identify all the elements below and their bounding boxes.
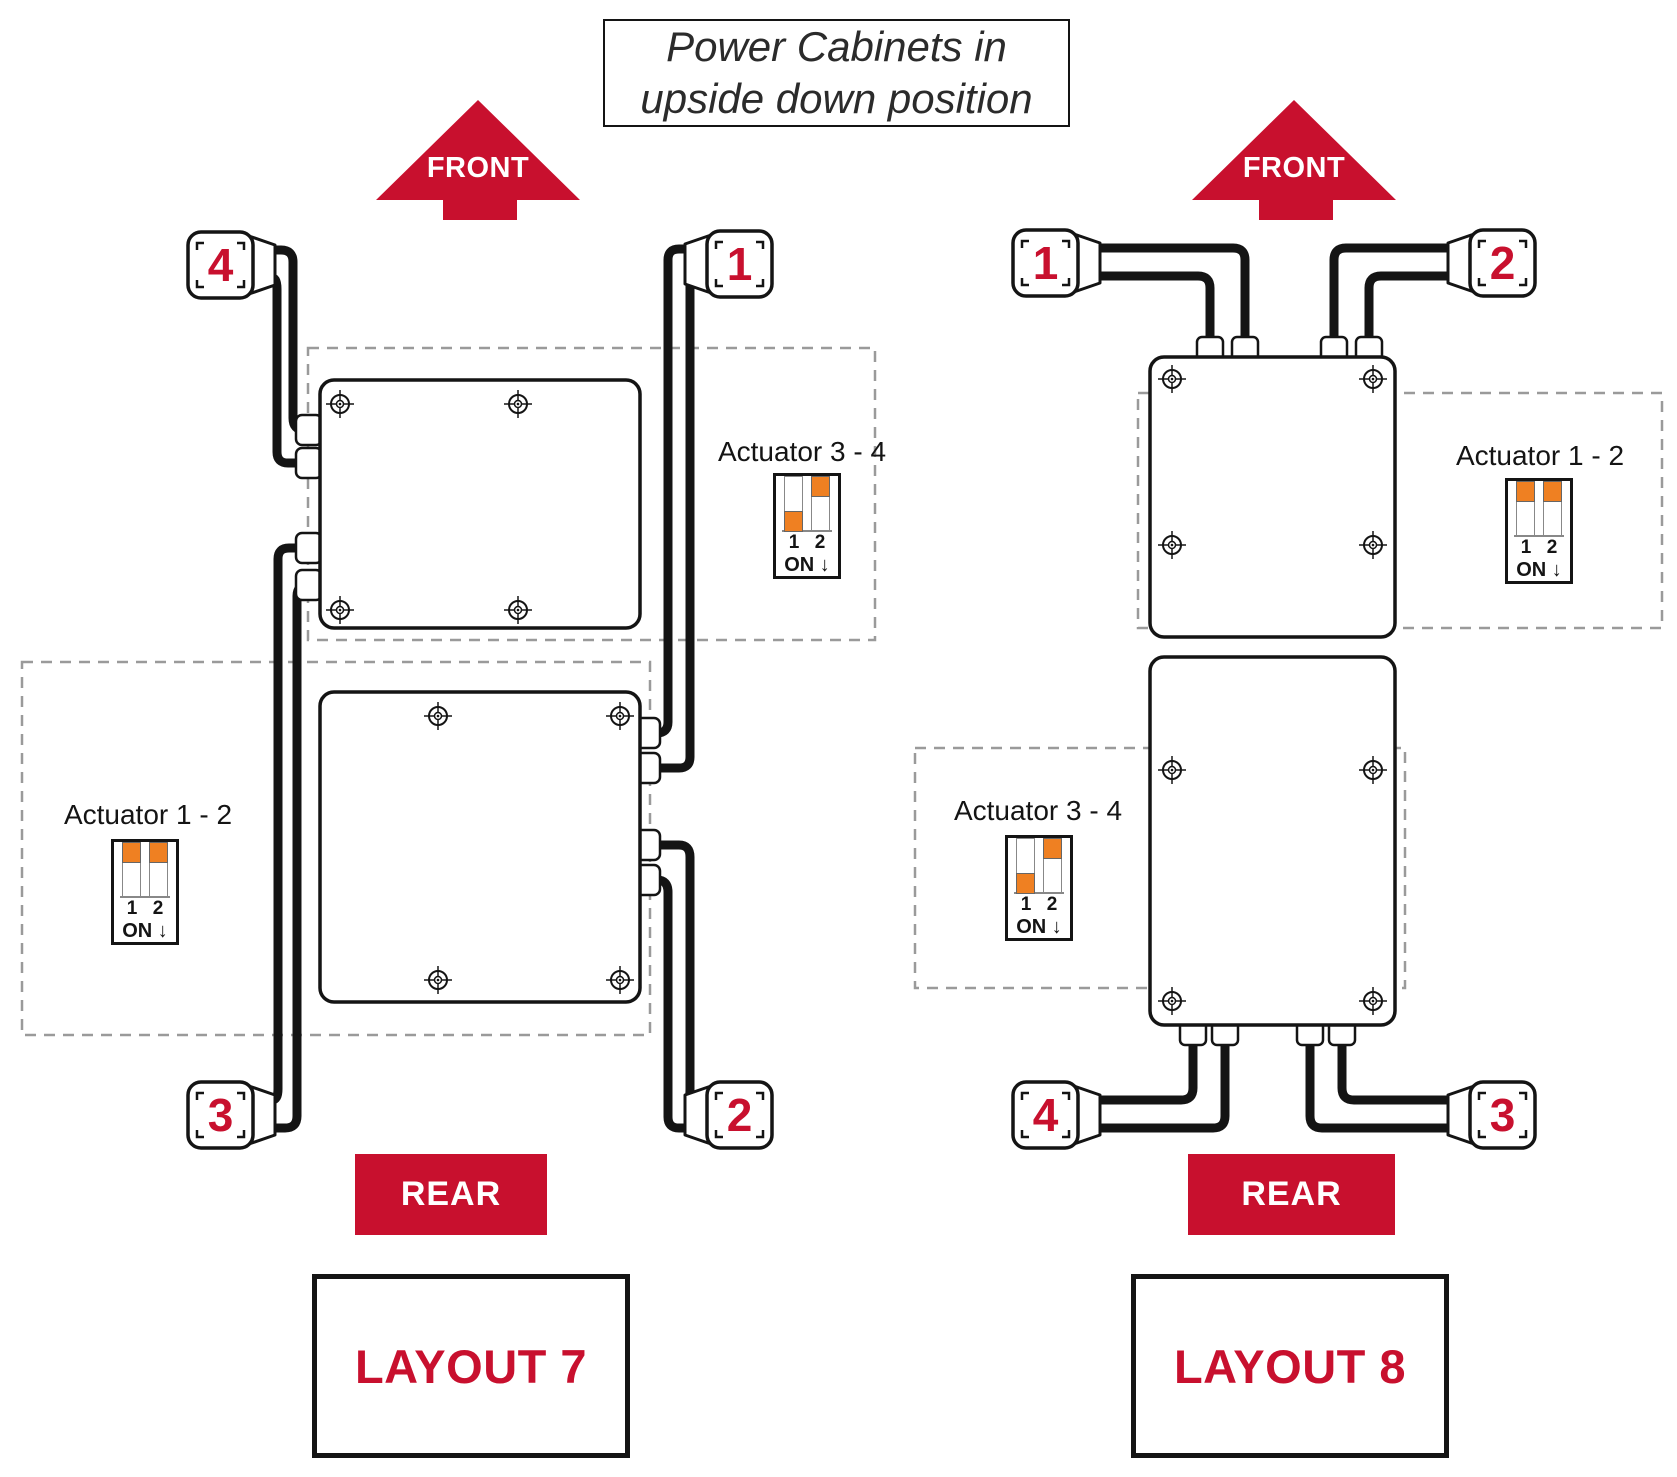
connector-number: 1 bbox=[707, 231, 772, 297]
dip-switch-actuator-1-2-layout7: 1 2 ON ↓ bbox=[111, 839, 179, 945]
front-label-layout8: FRONT bbox=[1243, 152, 1345, 185]
diagram-canvas: Power Cabinets in upside down position F… bbox=[0, 0, 1677, 1477]
diagram-title: Power Cabinets in upside down position bbox=[603, 19, 1070, 127]
dip-channel-1 bbox=[784, 476, 803, 531]
layout7-box: LAYOUT 7 bbox=[312, 1274, 630, 1458]
dip-pin-1: 1 bbox=[125, 899, 139, 920]
actuator-1-2-label-layout8: Actuator 1 - 2 bbox=[1456, 440, 1624, 472]
dip-pin-1: 1 bbox=[1019, 895, 1033, 916]
dip-knob-1 bbox=[784, 511, 803, 532]
dip-pin-1: 1 bbox=[787, 533, 801, 554]
dip-channel-2 bbox=[149, 842, 168, 897]
actuator-3-4-label-layout8: Actuator 3 - 4 bbox=[954, 795, 1122, 827]
connector-number: 3 bbox=[188, 1082, 253, 1148]
connector-number: 2 bbox=[707, 1082, 772, 1148]
dip-channel-2 bbox=[811, 476, 830, 531]
layout8-name: LAYOUT 8 bbox=[1174, 1339, 1406, 1394]
actuator-3-4-label-layout7: Actuator 3 - 4 bbox=[718, 436, 886, 468]
power-cabinet-bottom-layout7 bbox=[320, 692, 640, 1002]
dip-on-label: ON ↓ bbox=[1516, 559, 1562, 581]
dip-knob-2 bbox=[149, 842, 168, 863]
rear-banner-layout7: REAR bbox=[355, 1154, 547, 1235]
connector-number: 1 bbox=[1013, 230, 1078, 296]
connector-number: 3 bbox=[1470, 1082, 1535, 1148]
layout7-name: LAYOUT 7 bbox=[355, 1339, 587, 1394]
diagram-title-line2: upside down position bbox=[640, 73, 1032, 126]
layout8-box: LAYOUT 8 bbox=[1131, 1274, 1449, 1458]
dip-pin-numbers: 1 2 bbox=[787, 533, 827, 554]
dip-channel-1 bbox=[1016, 838, 1035, 893]
connector-number: 4 bbox=[188, 232, 253, 298]
dip-channel-1 bbox=[1516, 481, 1535, 536]
actuator-1-2-label-layout7: Actuator 1 - 2 bbox=[64, 799, 232, 831]
dip-pin-1: 1 bbox=[1519, 538, 1533, 559]
dip-on-label: ON ↓ bbox=[1016, 916, 1062, 938]
dip-switch-actuator-3-4-layout7: 1 2 ON ↓ bbox=[773, 473, 841, 579]
dip-pin-numbers: 1 2 bbox=[125, 899, 165, 920]
dip-pin-2: 2 bbox=[1045, 895, 1059, 916]
connector-number: 4 bbox=[1013, 1082, 1078, 1148]
dip-knob-1 bbox=[1016, 873, 1035, 894]
dip-switch-actuator-3-4-layout8: 1 2 ON ↓ bbox=[1005, 835, 1073, 941]
dip-knob-2 bbox=[1043, 838, 1062, 859]
dip-pin-numbers: 1 2 bbox=[1019, 895, 1059, 916]
power-cabinet-top-layout8 bbox=[1150, 357, 1395, 637]
dip-pin-numbers: 1 2 bbox=[1519, 538, 1559, 559]
dip-channel-2 bbox=[1543, 481, 1562, 536]
power-cabinet-top-layout7 bbox=[320, 380, 640, 628]
dip-knob-2 bbox=[1543, 481, 1562, 502]
rear-banner-layout8: REAR bbox=[1188, 1154, 1395, 1235]
power-cabinet-bottom-layout8 bbox=[1150, 657, 1395, 1025]
dip-knob-2 bbox=[811, 476, 830, 497]
dip-channel-1 bbox=[122, 842, 141, 897]
dip-channel-2 bbox=[1043, 838, 1062, 893]
dip-pin-2: 2 bbox=[151, 899, 165, 920]
dip-knob-1 bbox=[1516, 481, 1535, 502]
diagram-title-line1: Power Cabinets in bbox=[666, 21, 1007, 74]
dip-switch-actuator-1-2-layout8: 1 2 ON ↓ bbox=[1505, 478, 1573, 584]
front-label-layout7: FRONT bbox=[427, 152, 529, 185]
dip-pin-2: 2 bbox=[813, 533, 827, 554]
dip-on-label: ON ↓ bbox=[784, 554, 830, 576]
dip-pin-2: 2 bbox=[1545, 538, 1559, 559]
connector-number: 2 bbox=[1470, 230, 1535, 296]
dip-on-label: ON ↓ bbox=[122, 920, 168, 942]
dip-knob-1 bbox=[122, 842, 141, 863]
diagram-shapes bbox=[0, 0, 1677, 1477]
